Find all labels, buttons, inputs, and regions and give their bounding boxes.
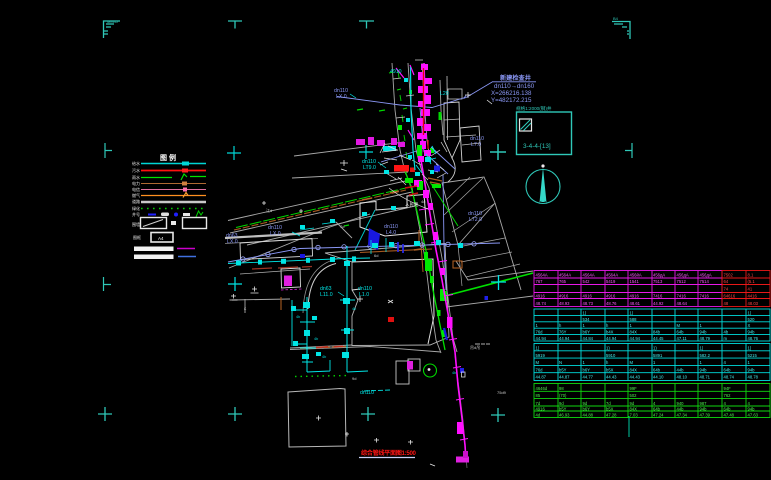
svg-text:L72.0: L72.0 xyxy=(469,217,482,223)
svg-text:L20: L20 xyxy=(440,91,449,97)
svg-text:A4: A4 xyxy=(158,236,164,241)
svg-text:75d9: 75d9 xyxy=(497,390,507,395)
svg-text:给水: 给水 xyxy=(132,160,140,166)
svg-text:道路: 道路 xyxy=(132,198,140,204)
svg-text:雨水: 雨水 xyxy=(132,174,140,180)
svg-text:围墙: 围墙 xyxy=(132,221,140,227)
svg-text:4b: 4b xyxy=(452,371,456,375)
svg-text:B4: B4 xyxy=(613,16,619,21)
svg-text:X=266216.138: X=266216.138 xyxy=(491,90,532,97)
svg-text:L7.0: L7.0 xyxy=(471,142,481,148)
svg-text:4b: 4b xyxy=(322,355,326,359)
svg-text:绿化: 绿化 xyxy=(132,205,140,211)
svg-text:4910: 4910 xyxy=(390,69,402,75)
svg-text:dn110: dn110 xyxy=(360,390,374,396)
svg-text:dn110→dn160: dn110→dn160 xyxy=(494,83,535,90)
svg-text:9d: 9d xyxy=(352,376,356,381)
svg-text:江d: 江d xyxy=(266,207,272,213)
svg-text:图框: 图框 xyxy=(133,234,141,240)
svg-text:LT9.0: LT9.0 xyxy=(363,165,376,171)
svg-text:3-4-4-[13]: 3-4-4-[13] xyxy=(523,143,551,150)
svg-text:污水: 污水 xyxy=(132,167,140,173)
svg-text:LX.0: LX.0 xyxy=(270,231,281,237)
svg-text:规格1:2000(钢)井: 规格1:2000(钢)井 xyxy=(516,105,552,112)
svg-text:L4.0: L4.0 xyxy=(386,230,396,236)
svg-text:6d: 6d xyxy=(374,253,378,258)
svg-text:燃气: 燃气 xyxy=(132,192,140,198)
svg-text:LX.0: LX.0 xyxy=(336,94,347,100)
svg-text:4b: 4b xyxy=(296,315,300,319)
svg-text:L11.0: L11.0 xyxy=(320,292,333,298)
svg-text:LX.0: LX.0 xyxy=(227,239,238,245)
svg-text:人民路: 人民路 xyxy=(405,201,419,208)
svg-text:4d: 4d xyxy=(421,199,425,204)
svg-text:4b: 4b xyxy=(314,337,318,341)
svg-text:吊d吊: 吊d吊 xyxy=(470,345,480,350)
svg-text:L1.0: L1.0 xyxy=(359,292,369,298)
svg-text:MM4J: MM4J xyxy=(107,19,118,24)
svg-text:Y=482172.215: Y=482172.215 xyxy=(491,97,532,104)
svg-text:电信: 电信 xyxy=(132,186,140,192)
svg-text:7d: 7d xyxy=(340,224,344,229)
svg-text:4b: 4b xyxy=(352,307,356,311)
svg-text:电力: 电力 xyxy=(132,180,140,186)
svg-text:综合管线平面图1:500: 综合管线平面图1:500 xyxy=(361,449,417,457)
svg-text:新建检查井: 新建检查井 xyxy=(500,74,531,82)
svg-text:图 例: 图 例 xyxy=(160,153,176,162)
svg-text:井号: 井号 xyxy=(132,211,140,217)
